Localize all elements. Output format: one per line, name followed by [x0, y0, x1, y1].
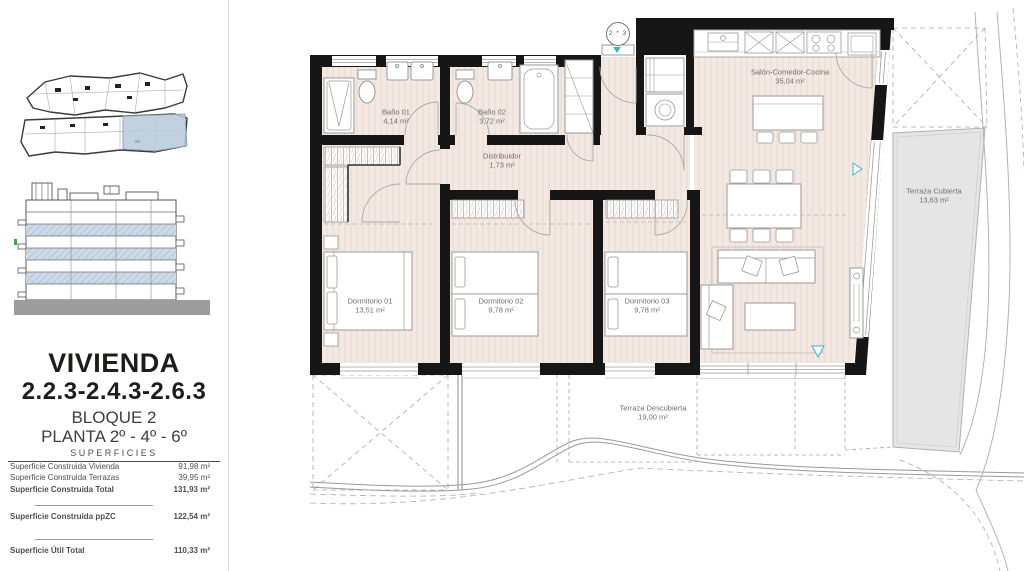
- table-row: Superficie Útil Total 110,33 m²: [10, 546, 210, 555]
- bathtub: [520, 65, 558, 133]
- room-label-distribuidor: Distribuidor1,73 m²: [483, 152, 521, 171]
- toilet: [358, 70, 376, 103]
- room-label-dormitorio-02: Dormitorio 029,78 m²: [478, 297, 523, 316]
- room-label-dormitorio-01: Dormitorio 0113,51 m²: [347, 297, 392, 316]
- surfaces-header: SUPERFICIES: [0, 448, 228, 458]
- shower: [324, 78, 354, 133]
- radiator: [850, 268, 863, 338]
- table-divider: [35, 539, 153, 540]
- block-label: BLOQUE 2: [0, 408, 228, 428]
- kitchen-island: [753, 96, 823, 143]
- sink: [488, 62, 512, 80]
- sidebar-divider: [228, 0, 229, 571]
- room-label-dormitorio-03: Dormitorio 039,78 m²: [624, 297, 669, 316]
- table-row: Superficie Construida Terrazas 39,95 m²: [10, 473, 210, 482]
- table-row: Superficie Construida Vivienda 91,98 m²: [10, 462, 210, 471]
- room-label-banyo-01: Baño 014,14 m²: [382, 108, 410, 127]
- dining-table: [727, 170, 801, 242]
- toilet: [456, 70, 474, 103]
- room-label-terraza-cubierta: Terraza Cubierta13,63 m²: [906, 187, 961, 206]
- kitchen-counter: [694, 30, 880, 57]
- terrace-covered-area: [893, 128, 985, 452]
- laundry-closet: [644, 55, 686, 127]
- dwelling-code: 2.2.3-2.4.3-2.6.3: [0, 378, 228, 406]
- closet-shelving: [565, 60, 593, 133]
- room-label-terraza-descubierta: Terraza Descubierta19,00 m²: [619, 404, 686, 423]
- table-divider: [35, 505, 153, 506]
- room-label-salon: Salón-Comedor-Cocina35,04 m²: [751, 68, 829, 87]
- plan-sheet: VIVIENDA 2.2.3-2.4.3-2.6.3 BLOQUE 2 PLAN…: [0, 0, 1024, 571]
- entry-unit-badge: 2 * 3: [606, 22, 630, 46]
- entry-arrow-icon: [613, 47, 621, 53]
- floor-label: PLANTA 2º - 4º - 6º: [0, 427, 228, 447]
- sidebar: VIVIENDA 2.2.3-2.4.3-2.6.3 BLOQUE 2 PLAN…: [0, 0, 228, 571]
- dwelling-title: VIVIENDA: [0, 348, 228, 379]
- room-label-banyo-02: Baño 023,72 m²: [478, 108, 506, 127]
- table-row: Superficie Construida Total 131,93 m²: [10, 485, 210, 494]
- table-row: Superficie Construida ppZC 122,54 m²: [10, 512, 210, 521]
